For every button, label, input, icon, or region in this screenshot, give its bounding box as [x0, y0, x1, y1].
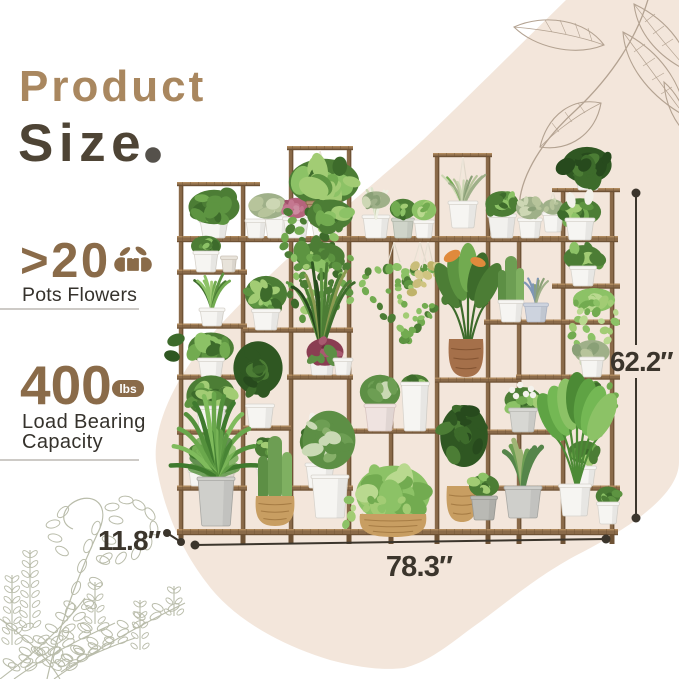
svg-text:62.2″: 62.2″ [610, 346, 673, 377]
svg-text:>20: >20 [20, 234, 111, 288]
svg-text:Product: Product [19, 62, 206, 111]
svg-text:Load Bearing: Load Bearing [22, 411, 146, 433]
svg-text:Size: Size [18, 114, 146, 173]
svg-text:lbs: lbs [119, 382, 137, 396]
svg-text:11.8″: 11.8″ [98, 525, 161, 556]
svg-text:400: 400 [20, 354, 112, 416]
svg-text:Capacity: Capacity [22, 431, 103, 453]
svg-text:78.3″: 78.3″ [386, 551, 453, 583]
svg-text:Pots Flowers: Pots Flowers [22, 284, 137, 306]
